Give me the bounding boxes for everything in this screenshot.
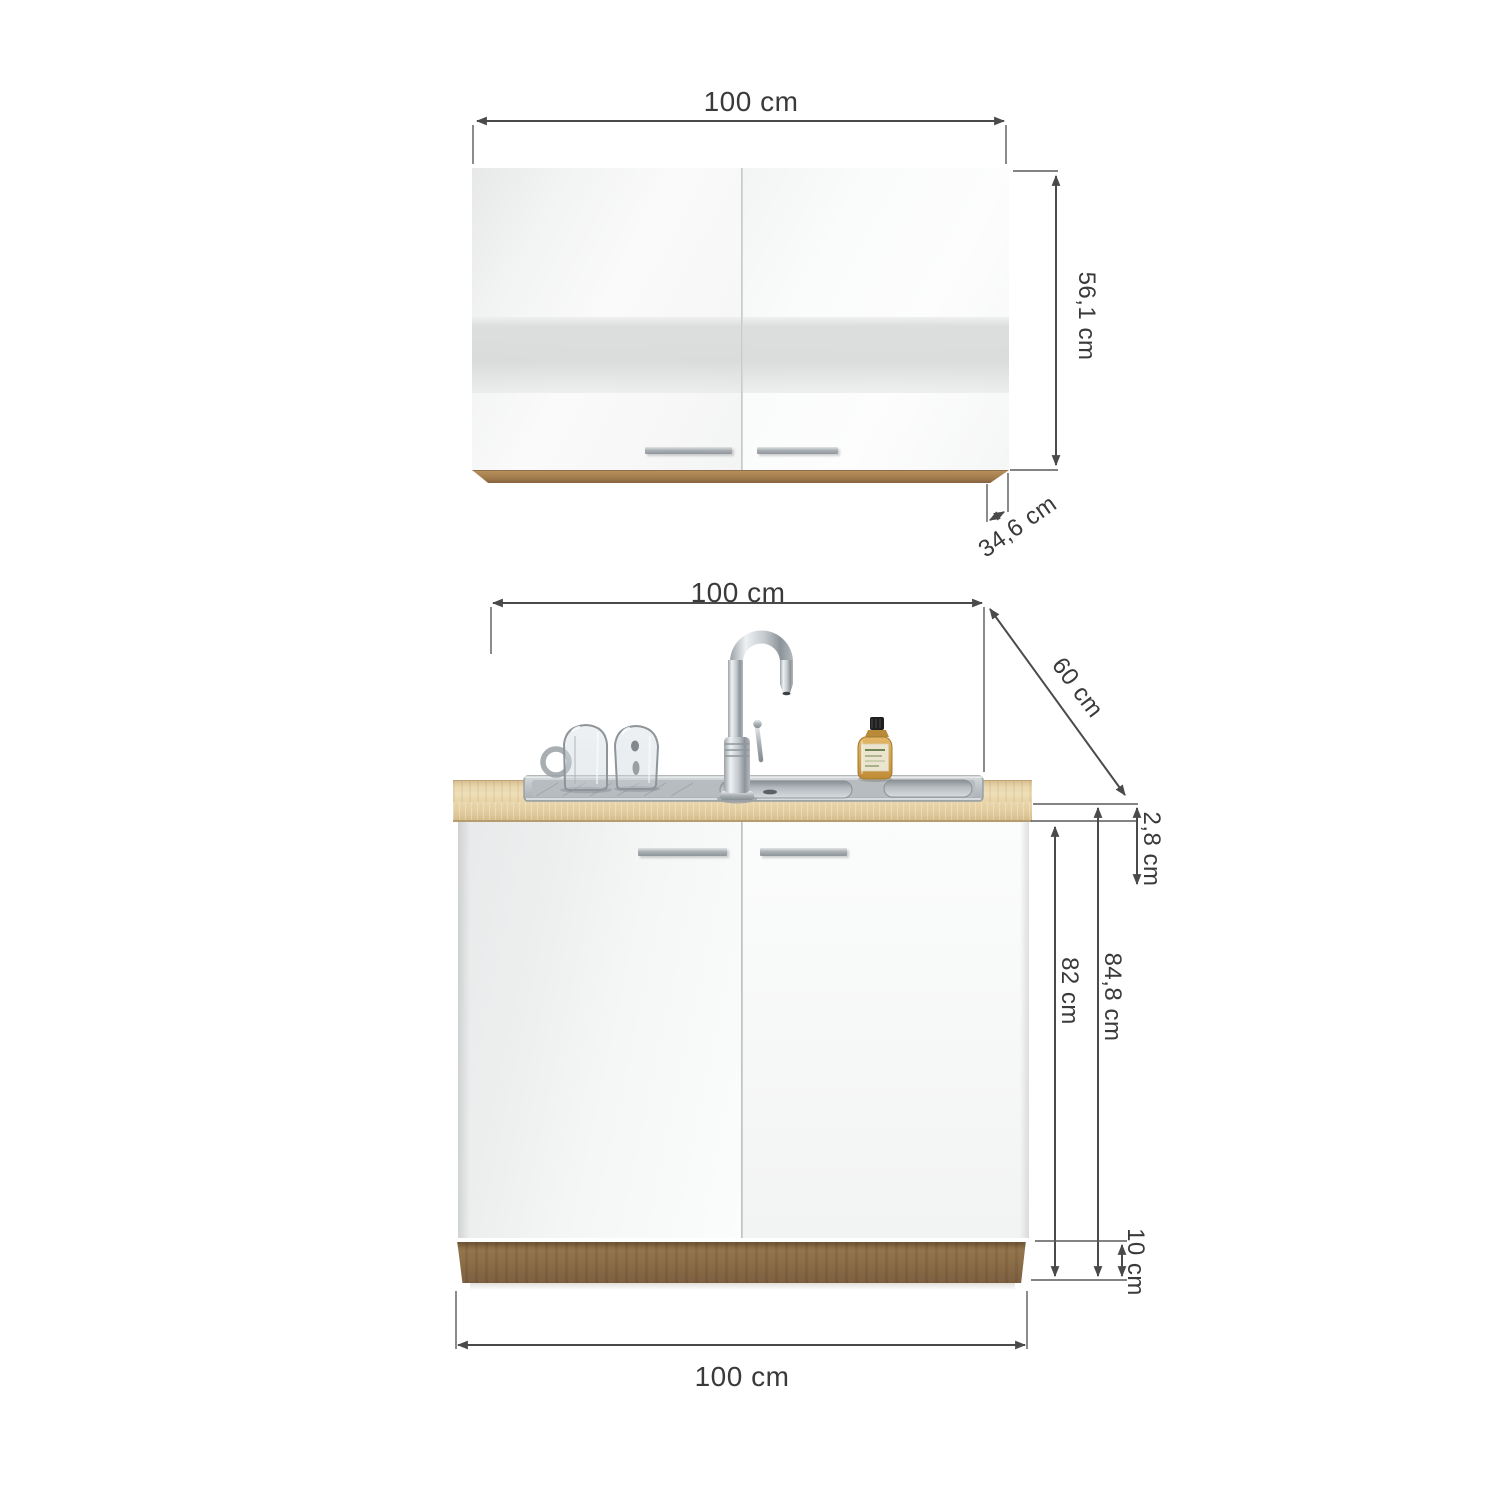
wall-width-label: 100 cm: [691, 88, 811, 116]
countertop-surface: [453, 780, 1032, 802]
base-right-door-handle: [760, 848, 847, 856]
base-cabinet-right-shade: [1020, 822, 1029, 1238]
wall-right-door-handle: [757, 447, 838, 454]
base-cabinet: [453, 780, 1032, 1283]
base-width-label: 100 cm: [678, 579, 798, 607]
wall-left-door-handle: [645, 447, 732, 454]
base-bottom-width-label: 100 cm: [682, 1363, 802, 1391]
base-cabinet-carcass: [458, 822, 1029, 1238]
floor-shadow: [470, 1283, 1015, 1290]
base-cabinet-door-gap: [741, 822, 743, 1238]
faucet: [717, 631, 793, 804]
base-right-door: [743, 822, 1029, 1238]
wall-cabinet: [472, 168, 1009, 483]
base-left-door: [458, 822, 741, 1238]
wall-height-label: 56,1 cm: [1074, 261, 1098, 371]
soap-bottle: [858, 717, 892, 782]
base-left-door-handle: [638, 848, 727, 856]
diagram-canvas: 100 cm 56,1 cm 34,6 cm 100 cm 60 cm 2,8 …: [0, 0, 1500, 1500]
countertop-thickness-label: 2,8 cm: [1139, 794, 1163, 904]
total-height-label: 84,8 cm: [1100, 942, 1124, 1052]
plinth-height-label: 10 cm: [1123, 1207, 1147, 1317]
base-cabinet-left-shade: [458, 822, 470, 1238]
wall-cabinet-door-gap: [741, 168, 743, 470]
carcass-height-label: 82 cm: [1057, 936, 1081, 1046]
base-depth-label: 60 cm: [1034, 637, 1119, 739]
wall-cabinet-bottom-panel: [472, 470, 1009, 483]
plinth: [455, 1242, 1028, 1283]
wall-depth-label: 34,6 cm: [966, 486, 1070, 569]
countertop-front-edge: [453, 802, 1032, 822]
